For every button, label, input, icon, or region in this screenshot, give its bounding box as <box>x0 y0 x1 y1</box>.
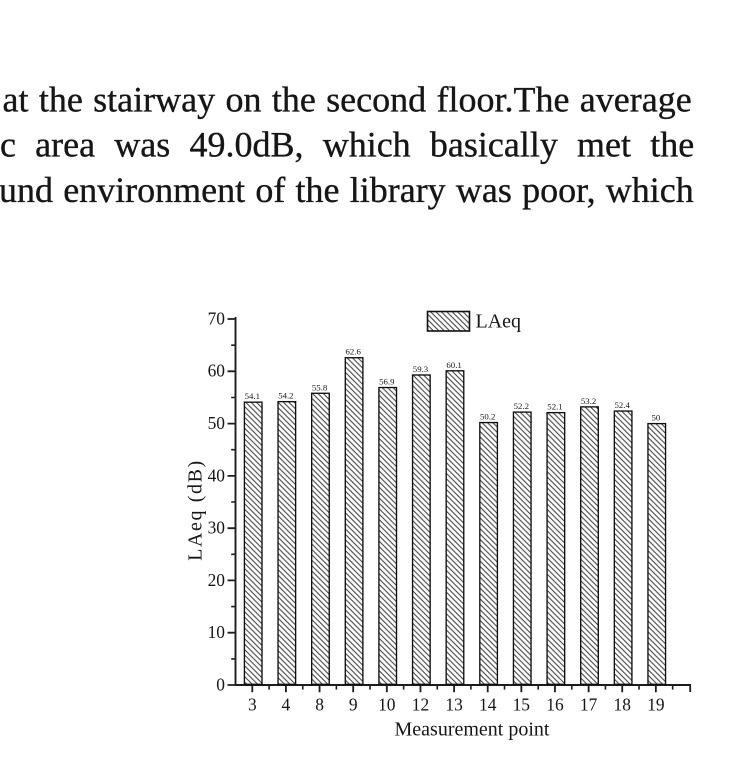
svg-text:16: 16 <box>546 695 564 715</box>
svg-text:70: 70 <box>208 308 226 328</box>
svg-text:9: 9 <box>349 695 358 715</box>
svg-text:12: 12 <box>412 695 429 715</box>
svg-text:40: 40 <box>208 465 226 485</box>
svg-text:50.2: 50.2 <box>480 412 495 422</box>
svg-text:15: 15 <box>513 695 531 715</box>
svg-text:at the stairway on the second: at the stairway on the second floor.The … <box>3 80 692 120</box>
svg-text:50: 50 <box>652 413 661 423</box>
svg-text:10: 10 <box>378 695 396 715</box>
svg-text:17: 17 <box>580 695 598 715</box>
svg-text:52.2: 52.2 <box>514 401 529 411</box>
svg-text:18: 18 <box>614 695 632 715</box>
svg-text:60: 60 <box>208 361 226 381</box>
svg-text:56.9: 56.9 <box>379 377 395 387</box>
svg-text:8: 8 <box>315 695 324 715</box>
svg-text:0: 0 <box>216 674 225 694</box>
svg-text:50: 50 <box>208 413 226 433</box>
svg-text:LAeq: LAeq <box>476 311 522 333</box>
svg-text:52.1: 52.1 <box>547 402 562 412</box>
svg-text:19: 19 <box>647 695 664 715</box>
svg-text:54.2: 54.2 <box>278 391 293 401</box>
svg-text:4: 4 <box>282 695 291 715</box>
svg-text:und environment of the library: und environment of the library was poor,… <box>0 170 694 210</box>
svg-text:10: 10 <box>208 622 226 642</box>
svg-text:53.2: 53.2 <box>581 396 596 406</box>
svg-text:Measurement point: Measurement point <box>395 719 550 741</box>
svg-text:59.3: 59.3 <box>413 364 429 374</box>
svg-text:LAeq (dB): LAeq (dB) <box>185 459 207 561</box>
svg-text:30: 30 <box>208 518 226 538</box>
svg-text:55.8: 55.8 <box>312 382 328 392</box>
svg-text:13: 13 <box>445 695 463 715</box>
svg-text:c area was 49.0dB, which basic: c area was 49.0dB, which basically met t… <box>0 125 694 165</box>
svg-text:14: 14 <box>479 695 497 715</box>
svg-text:60.1: 60.1 <box>446 360 461 370</box>
svg-text:52.4: 52.4 <box>614 400 630 410</box>
svg-text:20: 20 <box>208 570 226 590</box>
svg-text:3: 3 <box>248 695 257 715</box>
svg-text:54.1: 54.1 <box>245 391 260 401</box>
svg-text:62.6: 62.6 <box>345 347 361 357</box>
